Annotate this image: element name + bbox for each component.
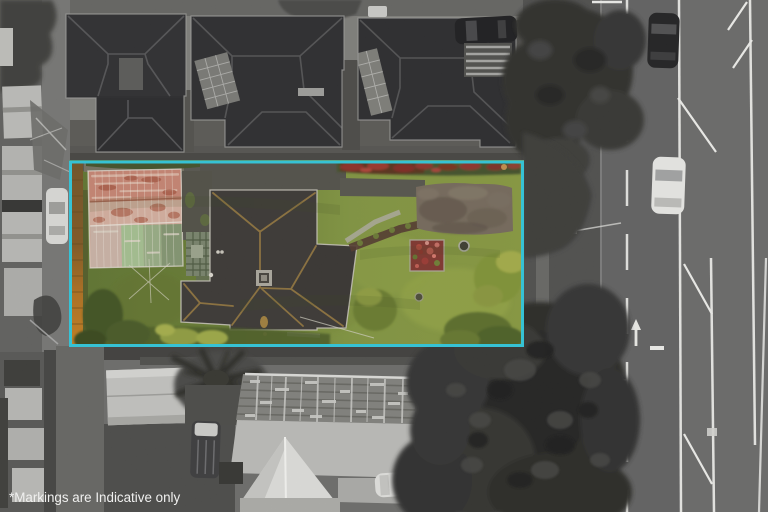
svg-text:*Markings are Indicative only: *Markings are Indicative only (9, 490, 180, 505)
